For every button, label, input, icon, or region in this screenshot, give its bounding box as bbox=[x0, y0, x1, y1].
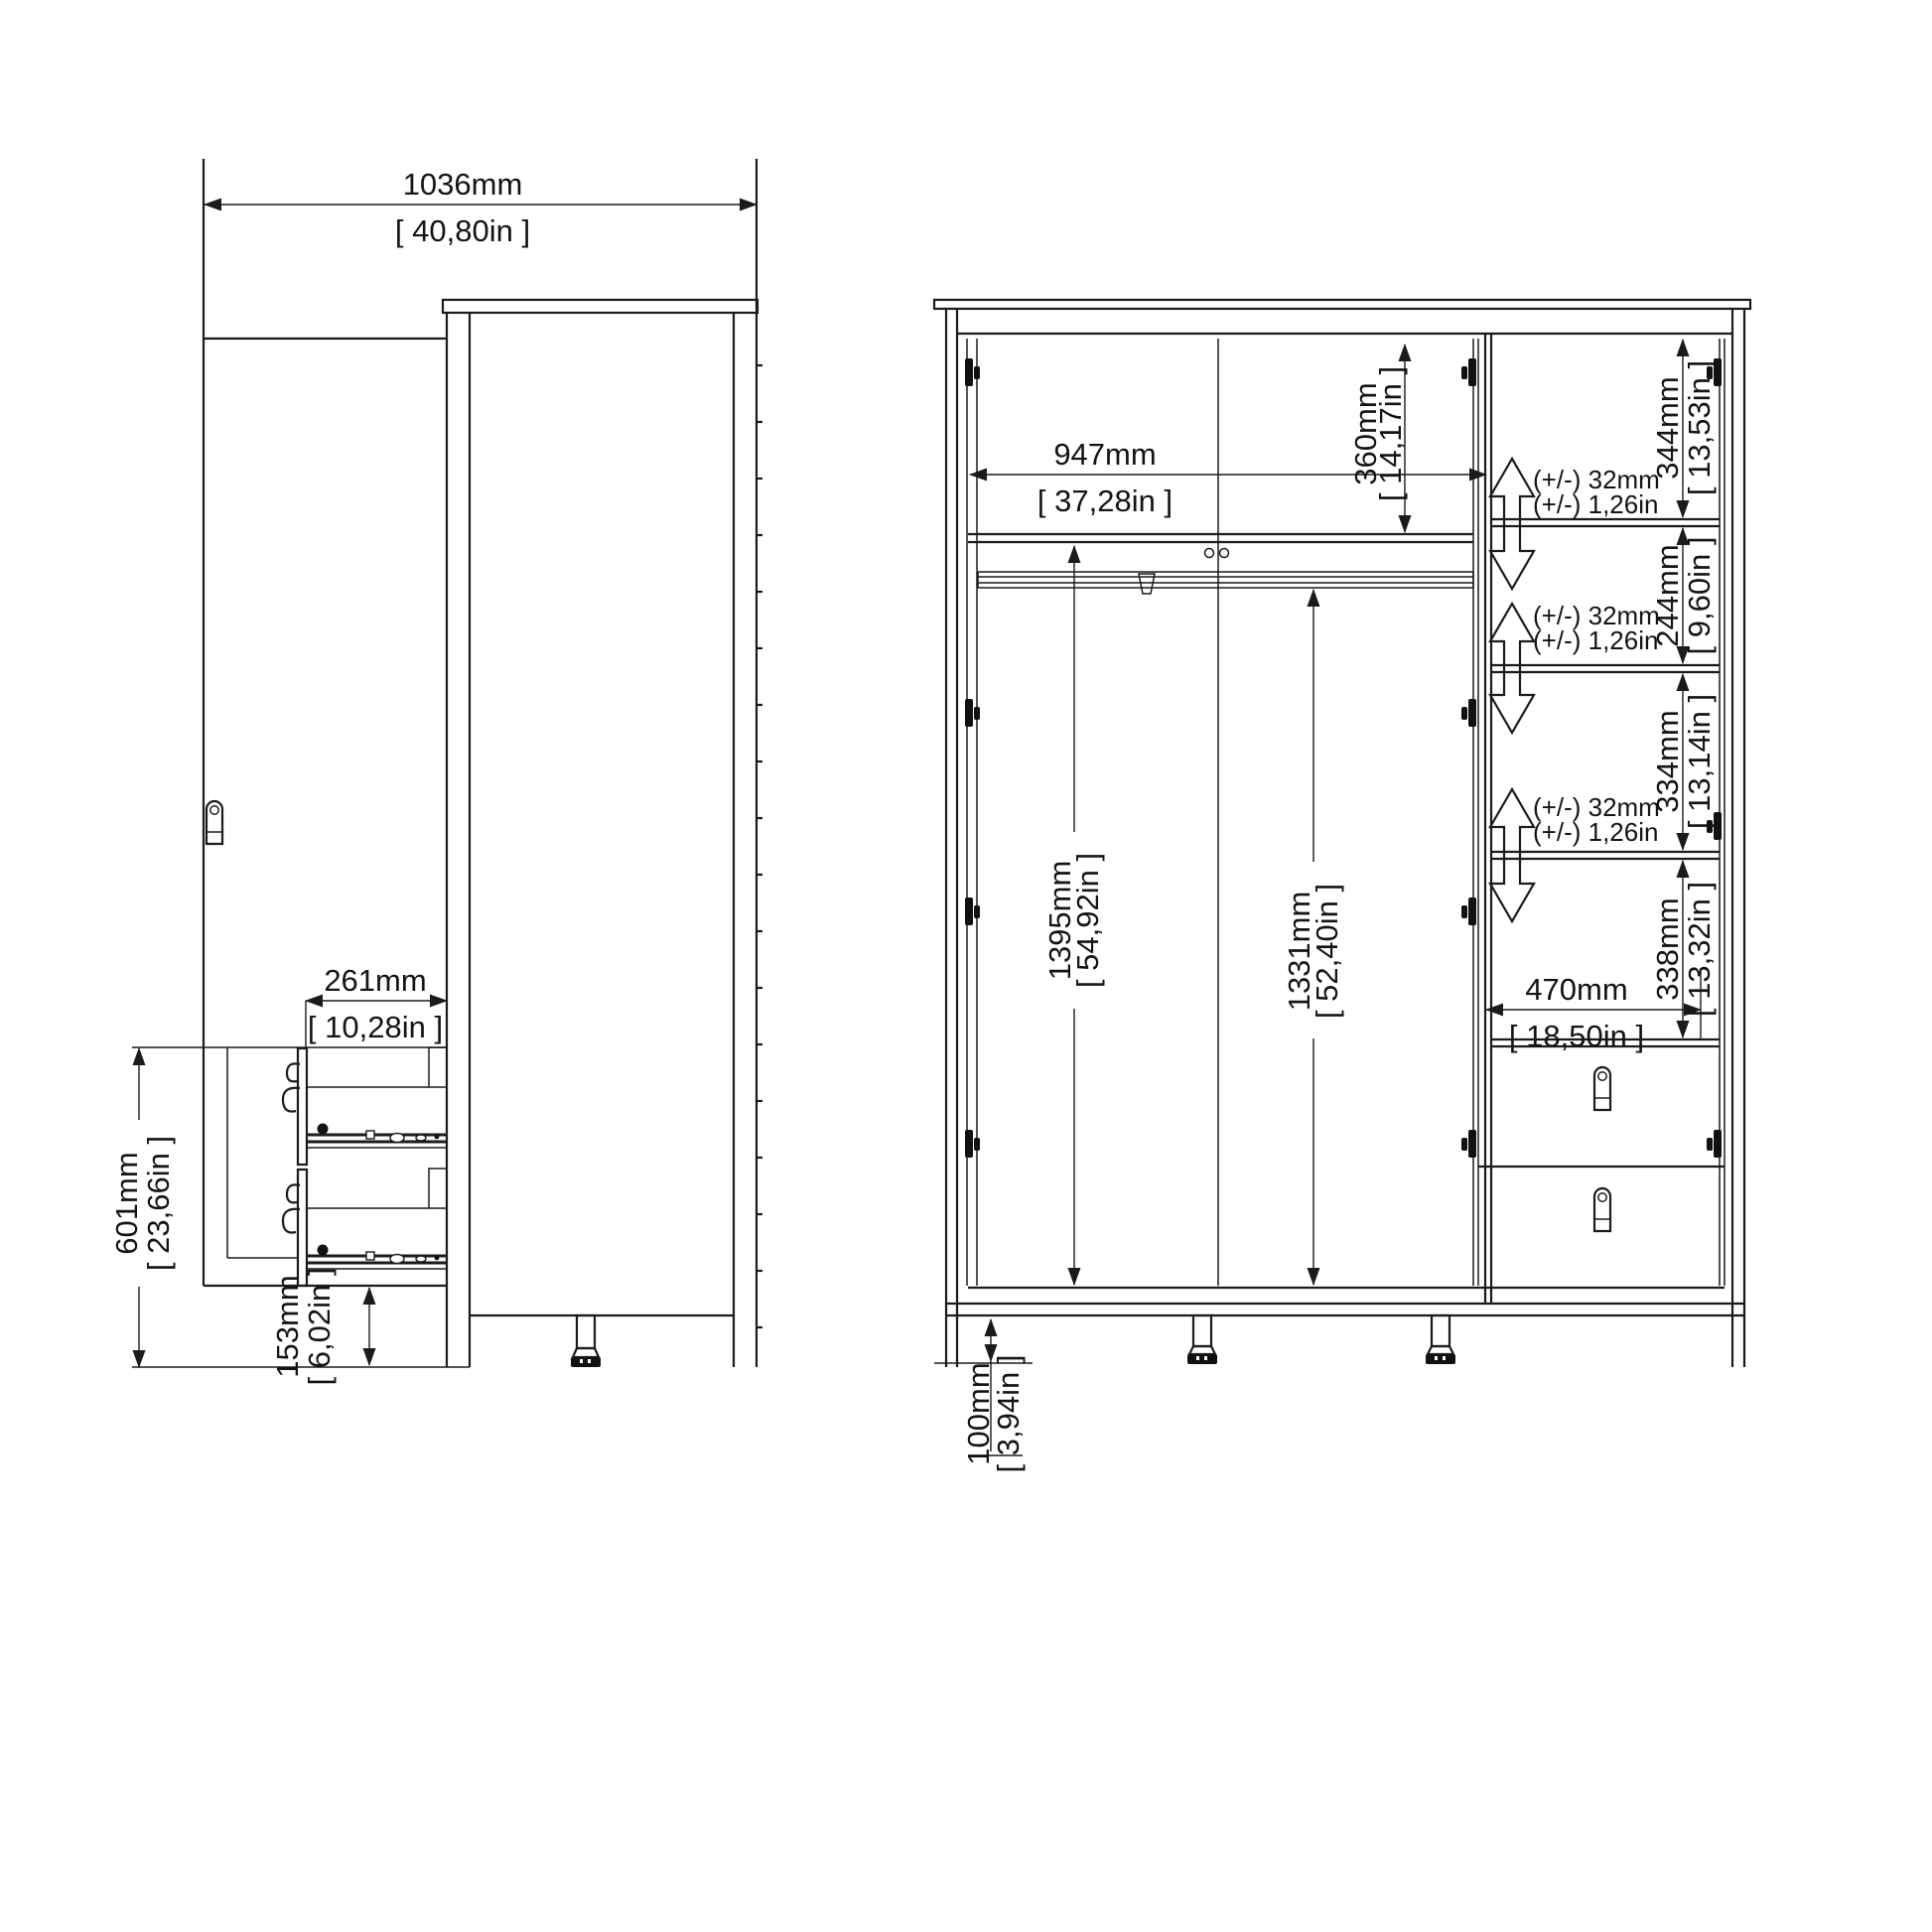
shelf-adjust-1-in-label: (+/-) 1,26in bbox=[1533, 489, 1658, 519]
dim-overall-width-in-label: [ 40,80in ] bbox=[395, 213, 530, 248]
dim-shelf-width-in-label: [ 18,50in ] bbox=[1509, 1019, 1644, 1053]
front-top-panel bbox=[934, 300, 1750, 309]
dim-shelf-gap-1-in-label: [ 13,53in ] bbox=[1682, 360, 1717, 495]
side-drawer-1 bbox=[283, 1047, 447, 1165]
dim-drawer-depth-in-label: [ 10,28in ] bbox=[308, 1010, 443, 1044]
side-foot bbox=[571, 1315, 601, 1367]
front-drawer-handle-2 bbox=[1594, 1188, 1610, 1231]
shelf-adjust-2-in-label: (+/-) 1,26in bbox=[1533, 625, 1658, 655]
front-drawer-handle-1 bbox=[1594, 1067, 1610, 1110]
dim-foot-height-in-label: [ 3,94in ] bbox=[991, 1355, 1026, 1473]
dim-interior-width-in-label: [ 37,28in ] bbox=[1037, 483, 1173, 518]
shelf-adjust-arrow-2 bbox=[1490, 604, 1534, 733]
side-view bbox=[132, 159, 762, 1367]
dim-shelf-gap-2-in-label: [ 9,60in ] bbox=[1682, 537, 1717, 655]
shelf-adjust-arrow-1 bbox=[1490, 459, 1534, 589]
wardrobe-dimension-diagram: 1036mm [ 40,80in ] 261mm [ 10,28in ] 601… bbox=[0, 0, 1932, 1932]
dim-hanging-right-in-label: [ 52,40in ] bbox=[1310, 884, 1344, 1019]
dim-interior-width-mm-label: 947mm bbox=[1053, 437, 1156, 472]
dim-drawer-depth-mm-label: 261mm bbox=[324, 963, 426, 998]
shelf-pin bbox=[1205, 549, 1214, 558]
dim-drawer-unit-height-mm-label: 601mm bbox=[109, 1152, 144, 1254]
dim-top-shelf-height-in-label: [ 14,17in ] bbox=[1373, 366, 1408, 501]
dim-hanging-left-in-label: [ 54,92in ] bbox=[1070, 853, 1105, 988]
hanging-rail bbox=[978, 572, 1473, 594]
shelf-adjust-arrow-3 bbox=[1490, 789, 1534, 921]
dim-shelf-gap-4-mm-label: 338mm bbox=[1650, 897, 1685, 1000]
technical-drawing-page: 1036mm [ 40,80in ] 261mm [ 10,28in ] 601… bbox=[0, 0, 1932, 1932]
shelf-pin bbox=[1220, 549, 1229, 558]
front-foot-left bbox=[1187, 1315, 1217, 1364]
dim-shelf-gap-4-in-label: [ 13,32in ] bbox=[1682, 882, 1717, 1017]
dim-overall-width-mm-label: 1036mm bbox=[403, 167, 523, 202]
side-top-panel bbox=[443, 300, 758, 313]
shelf-adjust-3-in-label: (+/-) 1,26in bbox=[1533, 817, 1658, 847]
door-handle-icon bbox=[207, 801, 222, 844]
dimension-lines bbox=[139, 205, 1701, 1455]
dim-shelf-gap-3-in-label: [ 13,14in ] bbox=[1682, 694, 1717, 829]
front-foot-right bbox=[1426, 1315, 1455, 1364]
dim-plinth-height-mm-label: 153mm bbox=[270, 1275, 305, 1377]
dim-shelf-width-mm-label: 470mm bbox=[1525, 972, 1627, 1007]
dim-plinth-height-in-label: [ 6,02in ] bbox=[302, 1268, 337, 1386]
dim-drawer-unit-height-in-label: [ 23,66in ] bbox=[141, 1136, 176, 1271]
